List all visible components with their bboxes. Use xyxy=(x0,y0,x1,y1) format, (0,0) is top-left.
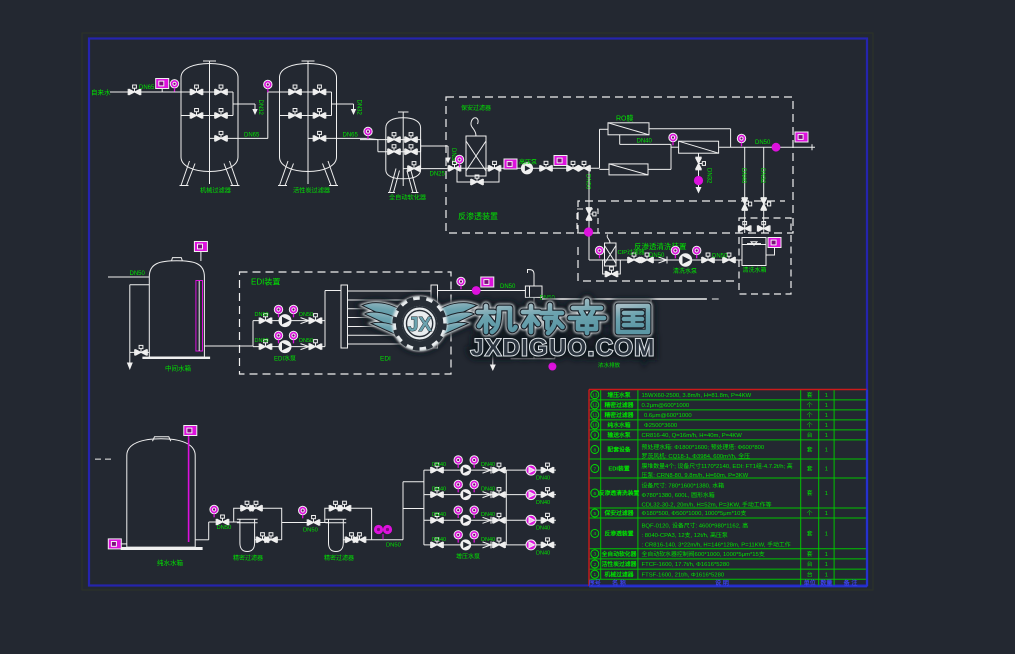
svg-text:8: 8 xyxy=(593,447,596,453)
svg-text:全自动软水器控制阀600*1000, 1000*5μm*15: 全自动软水器控制阀600*1000, 1000*5μm*15支 xyxy=(642,550,765,558)
svg-text:1: 1 xyxy=(825,448,828,454)
svg-text:9: 9 xyxy=(593,433,596,439)
svg-text:精密过滤器: 精密过滤器 xyxy=(605,401,634,409)
svg-text:DN40: DN40 xyxy=(432,537,446,543)
svg-text:数量: 数量 xyxy=(820,579,832,587)
svg-text:DN40: DN40 xyxy=(481,462,495,468)
svg-text:全自动软化器: 全自动软化器 xyxy=(389,194,427,202)
svg-text:1: 1 xyxy=(825,423,828,429)
svg-text:配套设备: 配套设备 xyxy=(607,446,630,454)
svg-text:高压泵: 高压泵 xyxy=(519,158,537,166)
svg-text:DN40: DN40 xyxy=(432,462,446,468)
svg-text:个: 个 xyxy=(807,402,813,409)
svg-text:DN40: DN40 xyxy=(637,139,653,145)
svg-text:1: 1 xyxy=(825,552,828,558)
svg-text:Φ180*500, Φ500*1000, 1000*5μm*: Φ180*500, Φ500*1000, 1000*5μm*10支 xyxy=(642,509,747,517)
svg-text:DN50: DN50 xyxy=(299,312,313,318)
svg-text:13: 13 xyxy=(592,393,598,399)
svg-text:名 称: 名 称 xyxy=(612,579,626,587)
svg-text:DN50: DN50 xyxy=(303,528,318,534)
svg-text:精密过滤器: 精密过滤器 xyxy=(605,411,634,419)
svg-text:反渗透装置: 反渗透装置 xyxy=(605,530,634,538)
svg-text:DN50: DN50 xyxy=(255,312,269,318)
svg-text:1: 1 xyxy=(825,511,828,517)
svg-text:DN40: DN40 xyxy=(432,512,446,518)
svg-text:台: 台 xyxy=(807,431,813,439)
svg-text:活性炭过滤器: 活性炭过滤器 xyxy=(602,560,637,568)
svg-text:DN50: DN50 xyxy=(585,174,591,190)
svg-text:DN50: DN50 xyxy=(255,338,269,344)
svg-text:DN65: DN65 xyxy=(139,85,155,91)
svg-text:精密过滤器: 精密过滤器 xyxy=(324,554,354,562)
svg-text:JX: JX xyxy=(407,314,432,336)
svg-text:10: 10 xyxy=(592,423,598,429)
svg-text:EDI: EDI xyxy=(380,356,391,363)
svg-text:个: 个 xyxy=(807,412,813,419)
svg-text:序号: 序号 xyxy=(588,579,601,587)
svg-text:DN50: DN50 xyxy=(649,253,665,259)
svg-text:BQF-0120, 设备尺寸: 4600*980*1162,: BQF-0120, 设备尺寸: 4600*980*1162, 高 xyxy=(642,522,749,530)
svg-text:CIP过滤器: CIP过滤器 xyxy=(618,248,645,256)
svg-text:DN40: DN40 xyxy=(432,487,446,493)
svg-text:1: 1 xyxy=(825,403,828,409)
svg-text:2: 2 xyxy=(593,562,596,568)
svg-text:DN32: DN32 xyxy=(759,168,765,184)
svg-text:6: 6 xyxy=(593,491,596,497)
svg-text:清洗水泵: 清洗水泵 xyxy=(673,267,697,275)
svg-text:15WX60-2500, 3.8m/h, H=81.8m,: 15WX60-2500, 3.8m/h, H=81.8m, P=4KW xyxy=(642,393,752,399)
svg-text:1: 1 xyxy=(825,491,828,497)
svg-text:输送水泵: 输送水泵 xyxy=(607,431,630,439)
svg-text:CR816-40, Q=16m/h, H=40m, P=4K: CR816-40, Q=16m/h, H=40m, P=4KW xyxy=(642,433,743,439)
svg-text:清洗水箱: 清洗水箱 xyxy=(743,266,767,274)
svg-text:说 明: 说 明 xyxy=(715,579,729,587)
svg-text:DN50: DN50 xyxy=(755,140,771,146)
svg-text:JXDIGUO.COM: JXDIGUO.COM xyxy=(471,335,656,362)
svg-text:纯水水箱: 纯水水箱 xyxy=(157,558,184,567)
svg-text:DN40: DN40 xyxy=(536,500,550,506)
svg-text:反渗透装置: 反渗透装置 xyxy=(458,211,498,221)
svg-text:DN40: DN40 xyxy=(481,512,495,518)
svg-text:DN40: DN40 xyxy=(536,526,550,532)
svg-text:12: 12 xyxy=(592,403,598,409)
svg-text:全自动软化器: 全自动软化器 xyxy=(601,550,637,558)
svg-text:1: 1 xyxy=(593,572,596,578)
svg-text:DN40: DN40 xyxy=(481,487,495,493)
svg-text:备 注: 备 注 xyxy=(843,579,858,587)
svg-text:增压水泵: 增压水泵 xyxy=(456,553,480,561)
svg-text:套: 套 xyxy=(807,391,813,399)
svg-text:DN40: DN40 xyxy=(481,537,495,543)
svg-text:保安过滤器: 保安过滤器 xyxy=(461,104,491,112)
svg-text:增压水泵: 增压水泵 xyxy=(607,391,630,399)
svg-text:纯水水箱: 纯水水箱 xyxy=(607,421,630,429)
svg-text:DN50: DN50 xyxy=(386,543,401,549)
svg-text:CDL32-30-2, 20m/h, H=52m, P=3K: CDL32-30-2, 20m/h, H=52m, P=3KW, 手动工作等 xyxy=(642,501,772,509)
svg-text:1: 1 xyxy=(825,532,828,538)
svg-text:DN25: DN25 xyxy=(430,172,446,178)
svg-text:DN50: DN50 xyxy=(217,525,232,531)
svg-text:0.2μm@600*1000: 0.2μm@600*1000 xyxy=(642,403,690,409)
svg-text:套: 套 xyxy=(807,489,813,497)
svg-text:EDI装置: EDI装置 xyxy=(251,277,280,287)
svg-text:单位: 单位 xyxy=(804,579,816,587)
svg-text:台: 台 xyxy=(807,570,813,578)
svg-text:套: 套 xyxy=(807,446,813,454)
svg-text:浓水排放: 浓水排放 xyxy=(598,361,621,369)
svg-text:Φ780*1380, 600L, 圆形水箱: Φ780*1380, 600L, 圆形水箱 xyxy=(642,491,715,499)
svg-text:膜堆数量4个; 设备尺寸1170*2140, EDI: FT: 膜堆数量4个; 设备尺寸1170*2140, EDI: FT1组-4.7.2t/… xyxy=(642,462,793,470)
svg-text:1: 1 xyxy=(825,562,828,568)
svg-text:机械过滤器: 机械过滤器 xyxy=(200,187,232,195)
svg-text:套: 套 xyxy=(807,550,813,558)
svg-text:自来水: 自来水 xyxy=(91,88,111,97)
svg-text:DN50: DN50 xyxy=(299,338,313,344)
svg-text:1: 1 xyxy=(825,393,828,399)
svg-text:FTCF-1600, 17.7t/h, Φ1616*5280: FTCF-1600, 17.7t/h, Φ1616*5280 xyxy=(642,562,731,568)
svg-text:FTSF-1600, 21t/h, Φ1616*5280: FTSF-1600, 21t/h, Φ1616*5280 xyxy=(642,572,725,578)
svg-text:4: 4 xyxy=(593,531,596,537)
svg-text:Φ2500*3600: Φ2500*3600 xyxy=(644,423,678,429)
svg-text:预处理水箱: Φ1800*1600; 预处理塔: Φ600*: 预处理水箱: Φ1800*1600; 预处理塔: Φ600*800 xyxy=(642,443,765,451)
svg-text:罗茨风机: CQ18-1, Φ3984, 600m³/h,: 罗茨风机: CQ18-1, Φ3984, 600m³/h, 全压 xyxy=(642,452,751,460)
svg-text:EDI水泵: EDI水泵 xyxy=(274,355,296,363)
svg-text:DN32: DN32 xyxy=(706,168,712,184)
svg-text:: 8040-CPA3, 12支, 12t/h, 高压泵: : 8040-CPA3, 12支, 12t/h, 高压泵 xyxy=(642,531,728,539)
svg-text:设备尺寸: 780*1600*1380, 水箱: 设备尺寸: 780*1600*1380, 水箱 xyxy=(642,482,725,490)
svg-text:: CR816-140, 3*22m/h, H=146*12: : CR816-140, 3*22m/h, H=146*128m, P=11KW… xyxy=(642,541,791,549)
svg-text:压泵: CRN8-80, 9.8m/h, H=60m, P=: 压泵: CRN8-80, 9.8m/h, H=60m, P=3KW xyxy=(642,472,749,479)
svg-text:0.6μm@600*1000: 0.6μm@600*1000 xyxy=(644,413,692,419)
svg-text:3: 3 xyxy=(593,552,596,558)
svg-text:1: 1 xyxy=(825,572,828,578)
svg-text:7: 7 xyxy=(593,466,596,472)
svg-text:DN40: DN40 xyxy=(536,476,550,482)
svg-text:5: 5 xyxy=(593,511,596,517)
svg-text:机械过滤器: 机械过滤器 xyxy=(605,570,634,578)
svg-text:个: 个 xyxy=(807,510,813,517)
svg-text:套: 套 xyxy=(807,530,813,538)
svg-text:保安过滤器: 保安过滤器 xyxy=(604,509,634,517)
svg-text:反渗透清洗装置: 反渗透清洗装置 xyxy=(599,489,640,497)
svg-text:11: 11 xyxy=(592,413,597,419)
svg-text:活性炭过滤器: 活性炭过滤器 xyxy=(293,187,331,195)
svg-text:DN50: DN50 xyxy=(712,254,728,260)
svg-text:RO膜: RO膜 xyxy=(616,114,634,123)
svg-text:1: 1 xyxy=(825,413,828,419)
svg-text:精密过滤器: 精密过滤器 xyxy=(233,554,263,562)
svg-text:DN40: DN40 xyxy=(740,168,746,184)
svg-text:套: 套 xyxy=(807,465,813,473)
svg-text:中间水箱: 中间水箱 xyxy=(165,364,192,373)
svg-text:台: 台 xyxy=(807,560,813,568)
svg-text:1: 1 xyxy=(825,467,828,473)
svg-text:个: 个 xyxy=(807,422,813,429)
svg-text:DN50: DN50 xyxy=(500,284,516,290)
svg-text:DN40: DN40 xyxy=(536,550,550,556)
svg-text:1: 1 xyxy=(825,433,828,439)
svg-text:EDI装置: EDI装置 xyxy=(608,465,629,473)
svg-text:DN50: DN50 xyxy=(130,271,146,277)
